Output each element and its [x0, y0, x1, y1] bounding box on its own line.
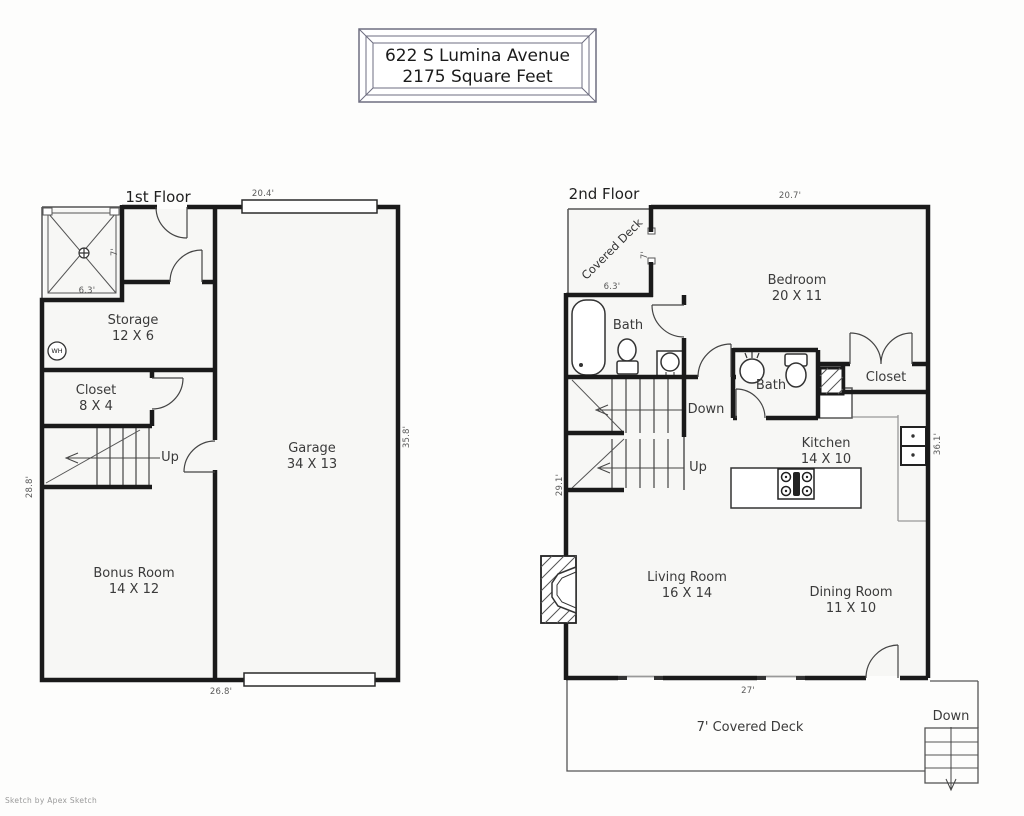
dim-2f-deck-width: 6.3': [604, 279, 621, 295]
address-line: 622 S Lumina Avenue: [361, 46, 594, 67]
floorplan-canvas: 622 S Lumina Avenue 2175 Square Feet 1st…: [0, 0, 1024, 816]
water-heater-label: WH: [51, 343, 62, 359]
dim-1f-right: 35.8': [399, 426, 415, 448]
dim-2f-deck-depth: 7': [637, 251, 653, 259]
dim-1f-bottom: 26.8': [210, 684, 232, 700]
room-label-storage: Storage 12 X 6: [108, 313, 159, 345]
toilet-icon-bath-main: [617, 339, 638, 374]
sink-icon-bath-main: [657, 351, 684, 376]
dim-1f-top: 20.4': [252, 186, 274, 202]
dim-1f-left: 28.8': [22, 476, 38, 498]
stairs-up-label-1f: Up: [161, 450, 179, 466]
toilet-icon-bath-half: [785, 354, 807, 387]
floor2-title: 2nd Floor: [569, 186, 640, 202]
floorplan-drawing: [0, 0, 1024, 816]
sketch-credit: Sketch by Apex Sketch: [5, 796, 97, 805]
floor1-title: 1st Floor: [125, 189, 190, 205]
kitchen-island: [731, 468, 861, 508]
fireplace-icon: [541, 556, 576, 623]
dim-1f-deck-width: 6.3': [79, 283, 96, 299]
ceiling-fixture-icon: [79, 248, 89, 258]
plan-title: 622 S Lumina Avenue 2175 Square Feet: [361, 46, 594, 88]
stairs-down-label-2f: Down: [688, 402, 725, 418]
room-label-dining: Dining Room 11 X 10: [809, 585, 892, 617]
kitchen-sink-icon: [901, 427, 926, 465]
square-feet-line: 2175 Square Feet: [361, 67, 594, 88]
room-label-bonus: Bonus Room 14 X 12: [93, 566, 174, 598]
dim-2f-left: 29.1': [552, 474, 568, 496]
deck-stairs-down-label: Down: [933, 709, 970, 725]
deck-stairs: [925, 727, 978, 790]
garage-door-bottom: [244, 673, 375, 686]
room-label-closet-1f: Closet 8 X 4: [76, 383, 117, 415]
room-label-living: Living Room 16 X 14: [647, 570, 727, 602]
bathtub-icon: [572, 300, 605, 375]
cooktop-icon: [778, 469, 814, 499]
dim-1f-deck-depth: 7': [107, 248, 123, 256]
room-label-garage: Garage 34 X 13: [287, 441, 337, 473]
dim-2f-wall: 27': [741, 683, 755, 699]
room-label-rear-deck: 7' Covered Deck: [697, 720, 804, 736]
room-label-bath-main: Bath: [613, 318, 643, 334]
dim-2f-right: 36.1': [930, 433, 946, 455]
room-label-closet-2f: Closet: [866, 370, 907, 386]
room-label-bedroom: Bedroom 20 X 11: [768, 273, 827, 305]
chase-hatch: [820, 368, 843, 394]
dim-2f-top: 20.7': [779, 188, 801, 204]
stairs-up-label-2f: Up: [689, 460, 707, 476]
room-label-kitchen: Kitchen 14 X 10: [801, 436, 851, 468]
room-label-bath-half: Bath: [756, 378, 786, 394]
